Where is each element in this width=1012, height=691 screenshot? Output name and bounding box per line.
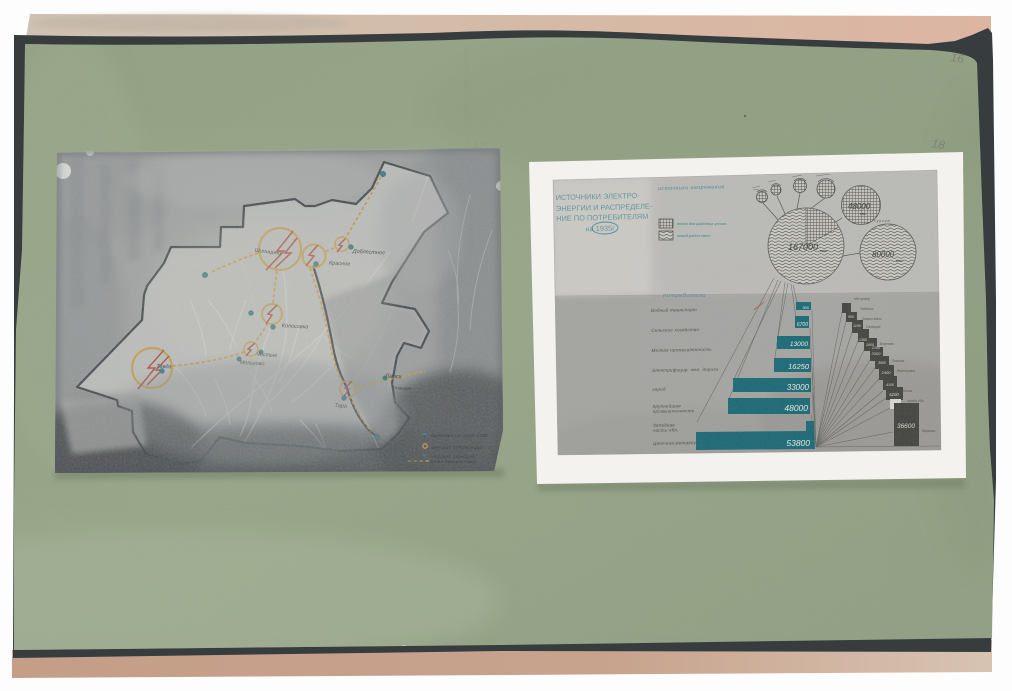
svg-text:18: 18 — [930, 136, 946, 152]
svg-text:16: 16 — [950, 50, 966, 66]
